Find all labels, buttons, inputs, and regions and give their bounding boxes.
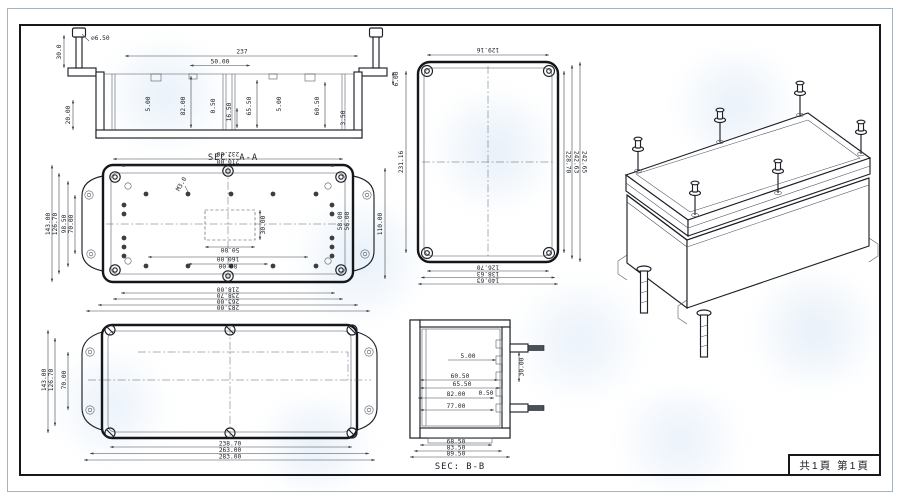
- dim-143: 143.00: [45, 213, 52, 236]
- end-geometry: [418, 62, 558, 262]
- dim-237: 237: [236, 49, 247, 56]
- dim-80: 80.00: [218, 262, 237, 269]
- dim-50-00-c: 50.00: [220, 246, 239, 253]
- dim-126-70: 126.70: [52, 213, 59, 236]
- dim-129-16: 129.16: [477, 46, 500, 53]
- mounting-screw-left: [76, 36, 82, 68]
- sec-bb-title: SEC: B-B: [435, 462, 485, 472]
- dim-70: 70.00: [68, 214, 75, 233]
- dim-30-0: 30.0: [56, 44, 63, 59]
- page-label: 共1頁 第1頁: [799, 458, 870, 473]
- dim-60-50: 60.50: [451, 373, 470, 380]
- dim-82-00: 82.00: [180, 96, 187, 115]
- dim-143: 143.00: [41, 369, 48, 392]
- dim-0-50: 0.50: [210, 98, 217, 113]
- dim-30-00: 30.00: [260, 215, 267, 234]
- view-sec-bb: 5.00 60.50 65.50 82.00 0.50 77.00 30.00 …: [398, 316, 630, 474]
- dim-140-63: 140.63: [477, 277, 500, 284]
- dim-110: 110.00: [377, 213, 384, 236]
- view-isometric: [598, 55, 893, 367]
- dim-16-50: 16.50: [226, 102, 233, 121]
- dim-60-50: 60.50: [314, 96, 321, 115]
- dim-210: 210.00: [217, 158, 240, 165]
- dim-5-00: 5.00: [461, 353, 476, 360]
- view-plan: M3.0 232.00 210.00 218.00 238.70 263.00 …: [40, 148, 400, 326]
- dim-138-63: 138.63: [477, 270, 500, 277]
- cable-screws: [510, 344, 544, 412]
- lid-dimensions: 143.00 126.70 70.00 238.70 263.00 283.00: [41, 330, 375, 461]
- plan-dimensions: 232.00 210.00 218.00 238.70 263.00 283.0…: [45, 150, 385, 311]
- view-end: 129.16 231.16 228.70 242.63 242.65 126.7…: [393, 28, 595, 300]
- lid-screws: [105, 325, 357, 438]
- dim-5-00-a: 5.00: [145, 96, 152, 111]
- dim-89-50: 89.50: [447, 451, 466, 458]
- iso-body: [618, 113, 878, 324]
- dim-58: 58.00: [337, 211, 344, 230]
- dim-20-00: 20.00: [65, 105, 72, 124]
- dim-283: 283.00: [219, 454, 242, 461]
- dim-hole-dia: ⌀6.50: [91, 35, 110, 42]
- dim-263: 263.00: [217, 298, 240, 305]
- dim-228-70: 228.70: [565, 151, 572, 174]
- dim-160: 160.00: [217, 255, 240, 262]
- dim-70: 70.00: [61, 370, 68, 389]
- dim-50-00: 50.00: [211, 59, 230, 66]
- ear-holes: [86, 348, 373, 414]
- dim-65-50: 65.50: [246, 96, 253, 115]
- dim-218: 218.00: [217, 286, 240, 293]
- dim-3-50: 3.50: [340, 110, 347, 125]
- view-lid: 143.00 126.70 70.00 238.70 263.00 283.00: [38, 318, 398, 468]
- sec-bb-geometry: [410, 320, 544, 443]
- dim-77-00: 77.00: [447, 403, 466, 410]
- dim-126-70: 126.70: [48, 369, 55, 392]
- dim-232: 232.00: [217, 150, 240, 157]
- drawing-sheet: 237 50.00 ⌀6.50 30.0 20.00 6.00 5.00 82.…: [0, 0, 900, 500]
- dim-283: 283.00: [217, 304, 240, 311]
- dim-0-50: 0.50: [479, 390, 494, 397]
- title-block: 共1頁 第1頁: [788, 454, 879, 474]
- dim-242-63: 242.63: [573, 151, 580, 174]
- dim-65-50: 65.50: [453, 381, 472, 388]
- sec-aa-dimensions: 237 50.00 ⌀6.50 30.0 20.00 6.00 5.00 82.…: [56, 34, 400, 130]
- lid-geometry: [82, 325, 377, 438]
- dim-56: 56.00: [344, 211, 351, 230]
- dim-98-50: 98.50: [61, 214, 68, 233]
- dim-126-70: 126.70: [477, 264, 500, 271]
- dim-30-00: 30.00: [519, 357, 526, 376]
- dim-238-70: 238.70: [217, 292, 240, 299]
- dim-231-16: 231.16: [398, 151, 405, 174]
- dim-242-65: 242.65: [581, 151, 588, 174]
- thread-callout-m3: M3.0: [175, 176, 189, 193]
- dim-82-00: 82.00: [447, 391, 466, 398]
- mounting-screw-right: [373, 36, 379, 68]
- dim-5-00-b: 5.00: [276, 96, 283, 111]
